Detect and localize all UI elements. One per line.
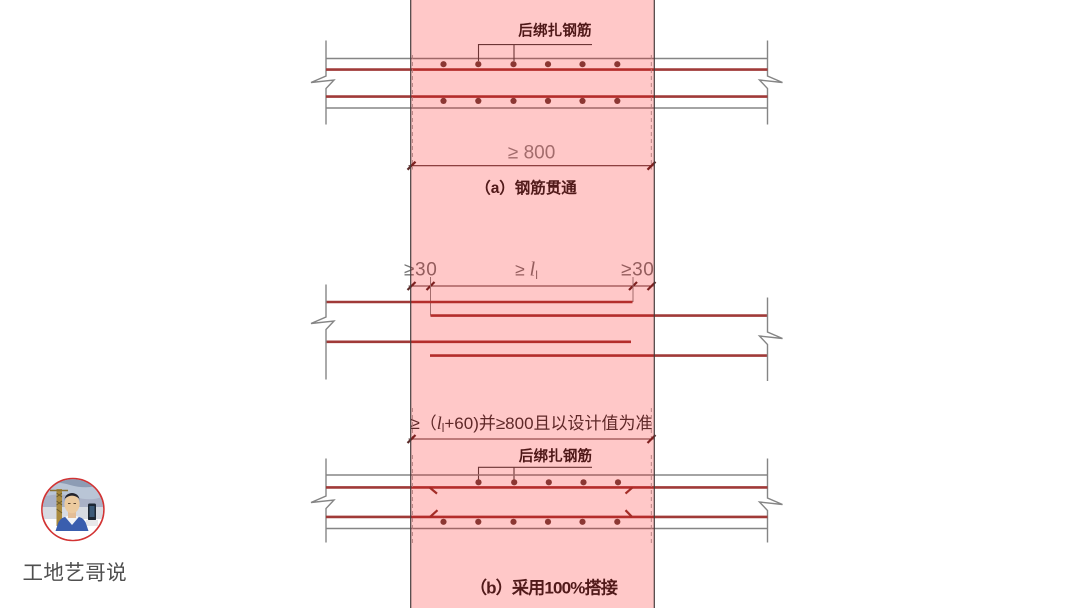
svg-text:工地艺哥说: 工地艺哥说	[23, 562, 128, 585]
